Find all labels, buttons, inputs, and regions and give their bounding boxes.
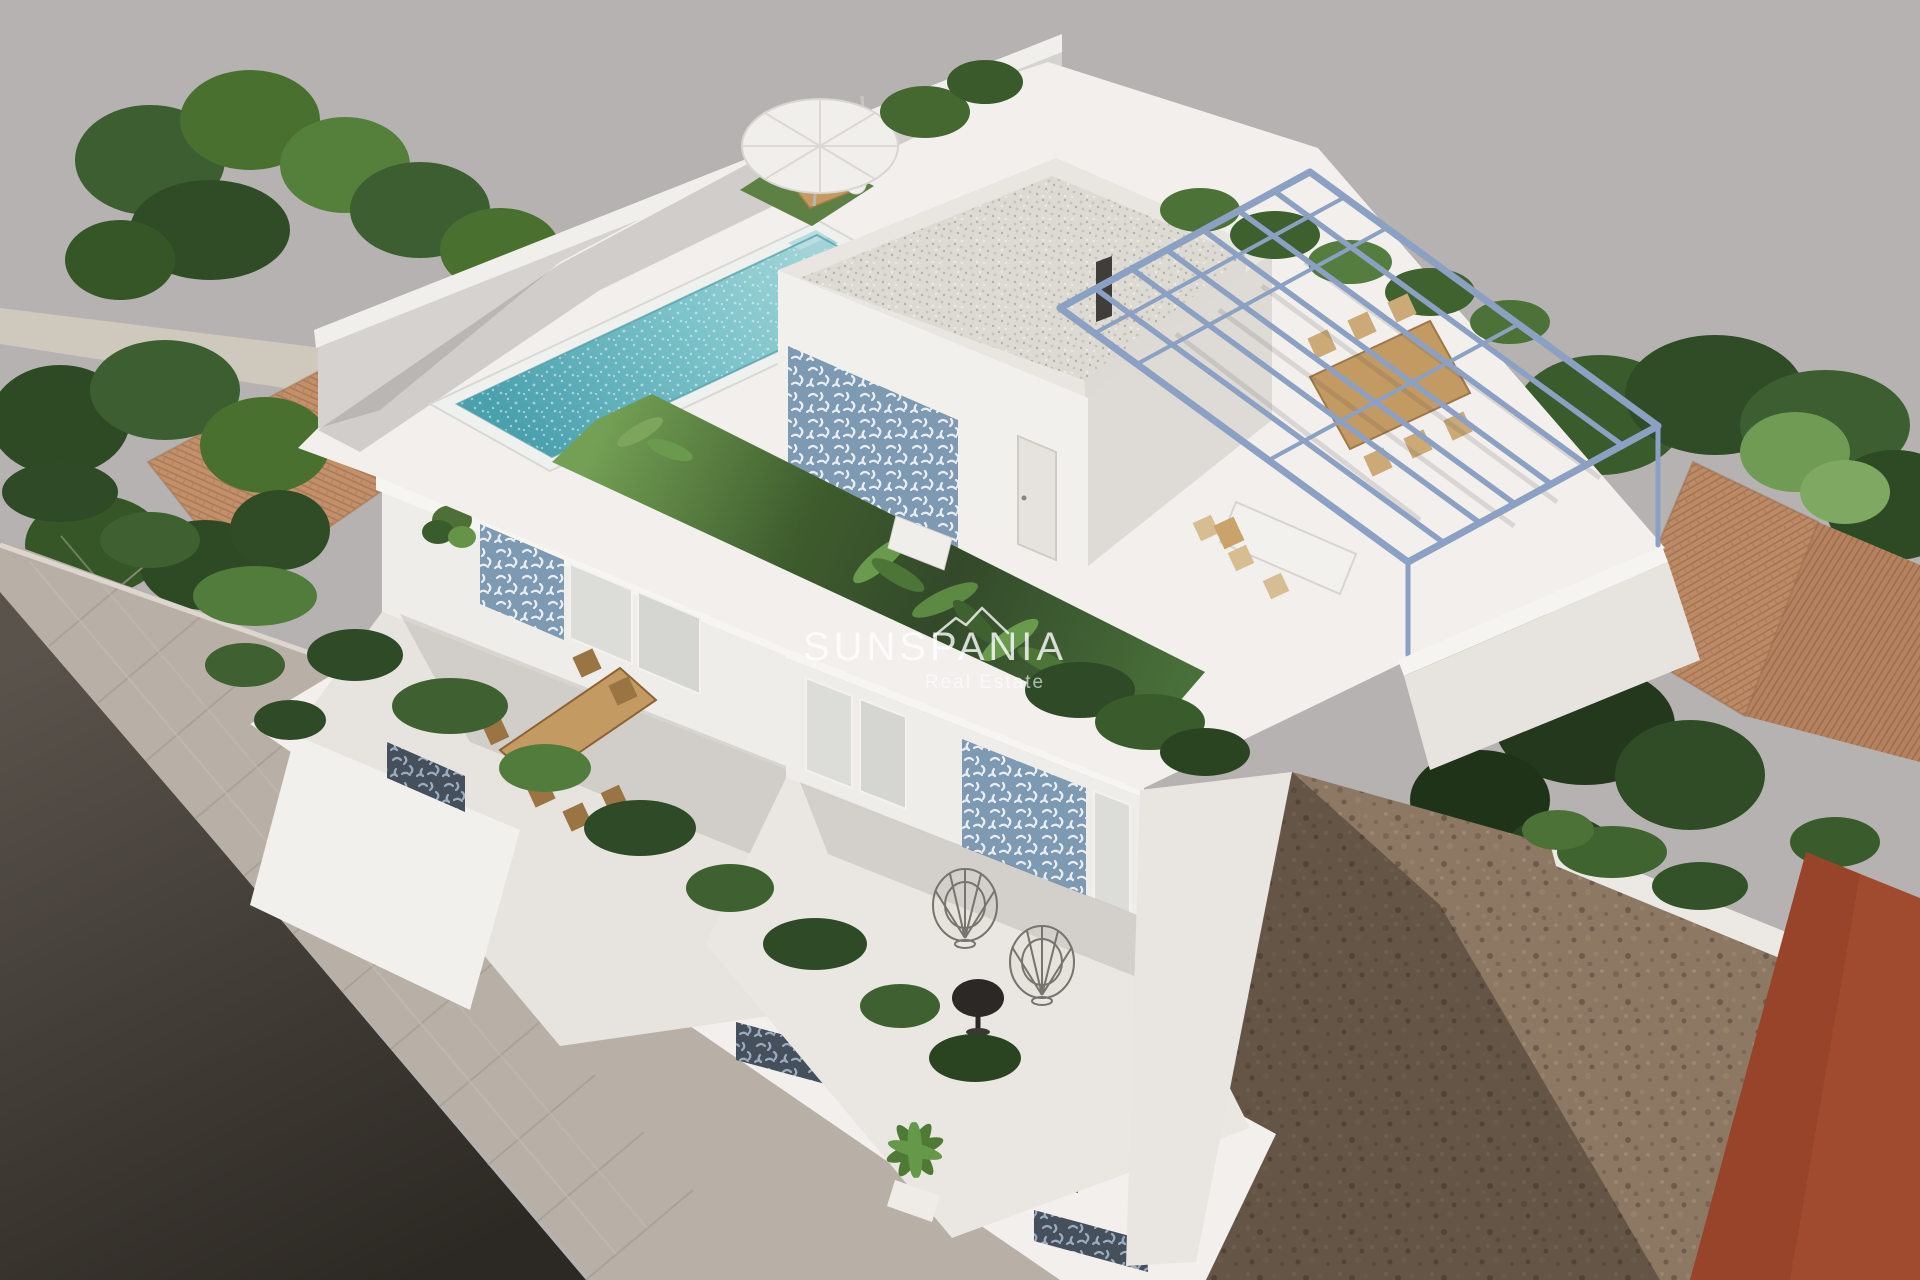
glass-door	[806, 678, 852, 788]
architectural-render: SUNSPANIA Real Estate	[0, 0, 1920, 1280]
render-image: SUNSPANIA Real Estate	[0, 0, 1920, 1280]
watermark-brand: SUNSPANIA	[803, 625, 1067, 669]
watermark-tagline: Real Estate	[925, 672, 1045, 693]
glass-door	[860, 699, 906, 809]
door-handle	[1022, 496, 1027, 501]
glass-door	[1094, 791, 1130, 919]
